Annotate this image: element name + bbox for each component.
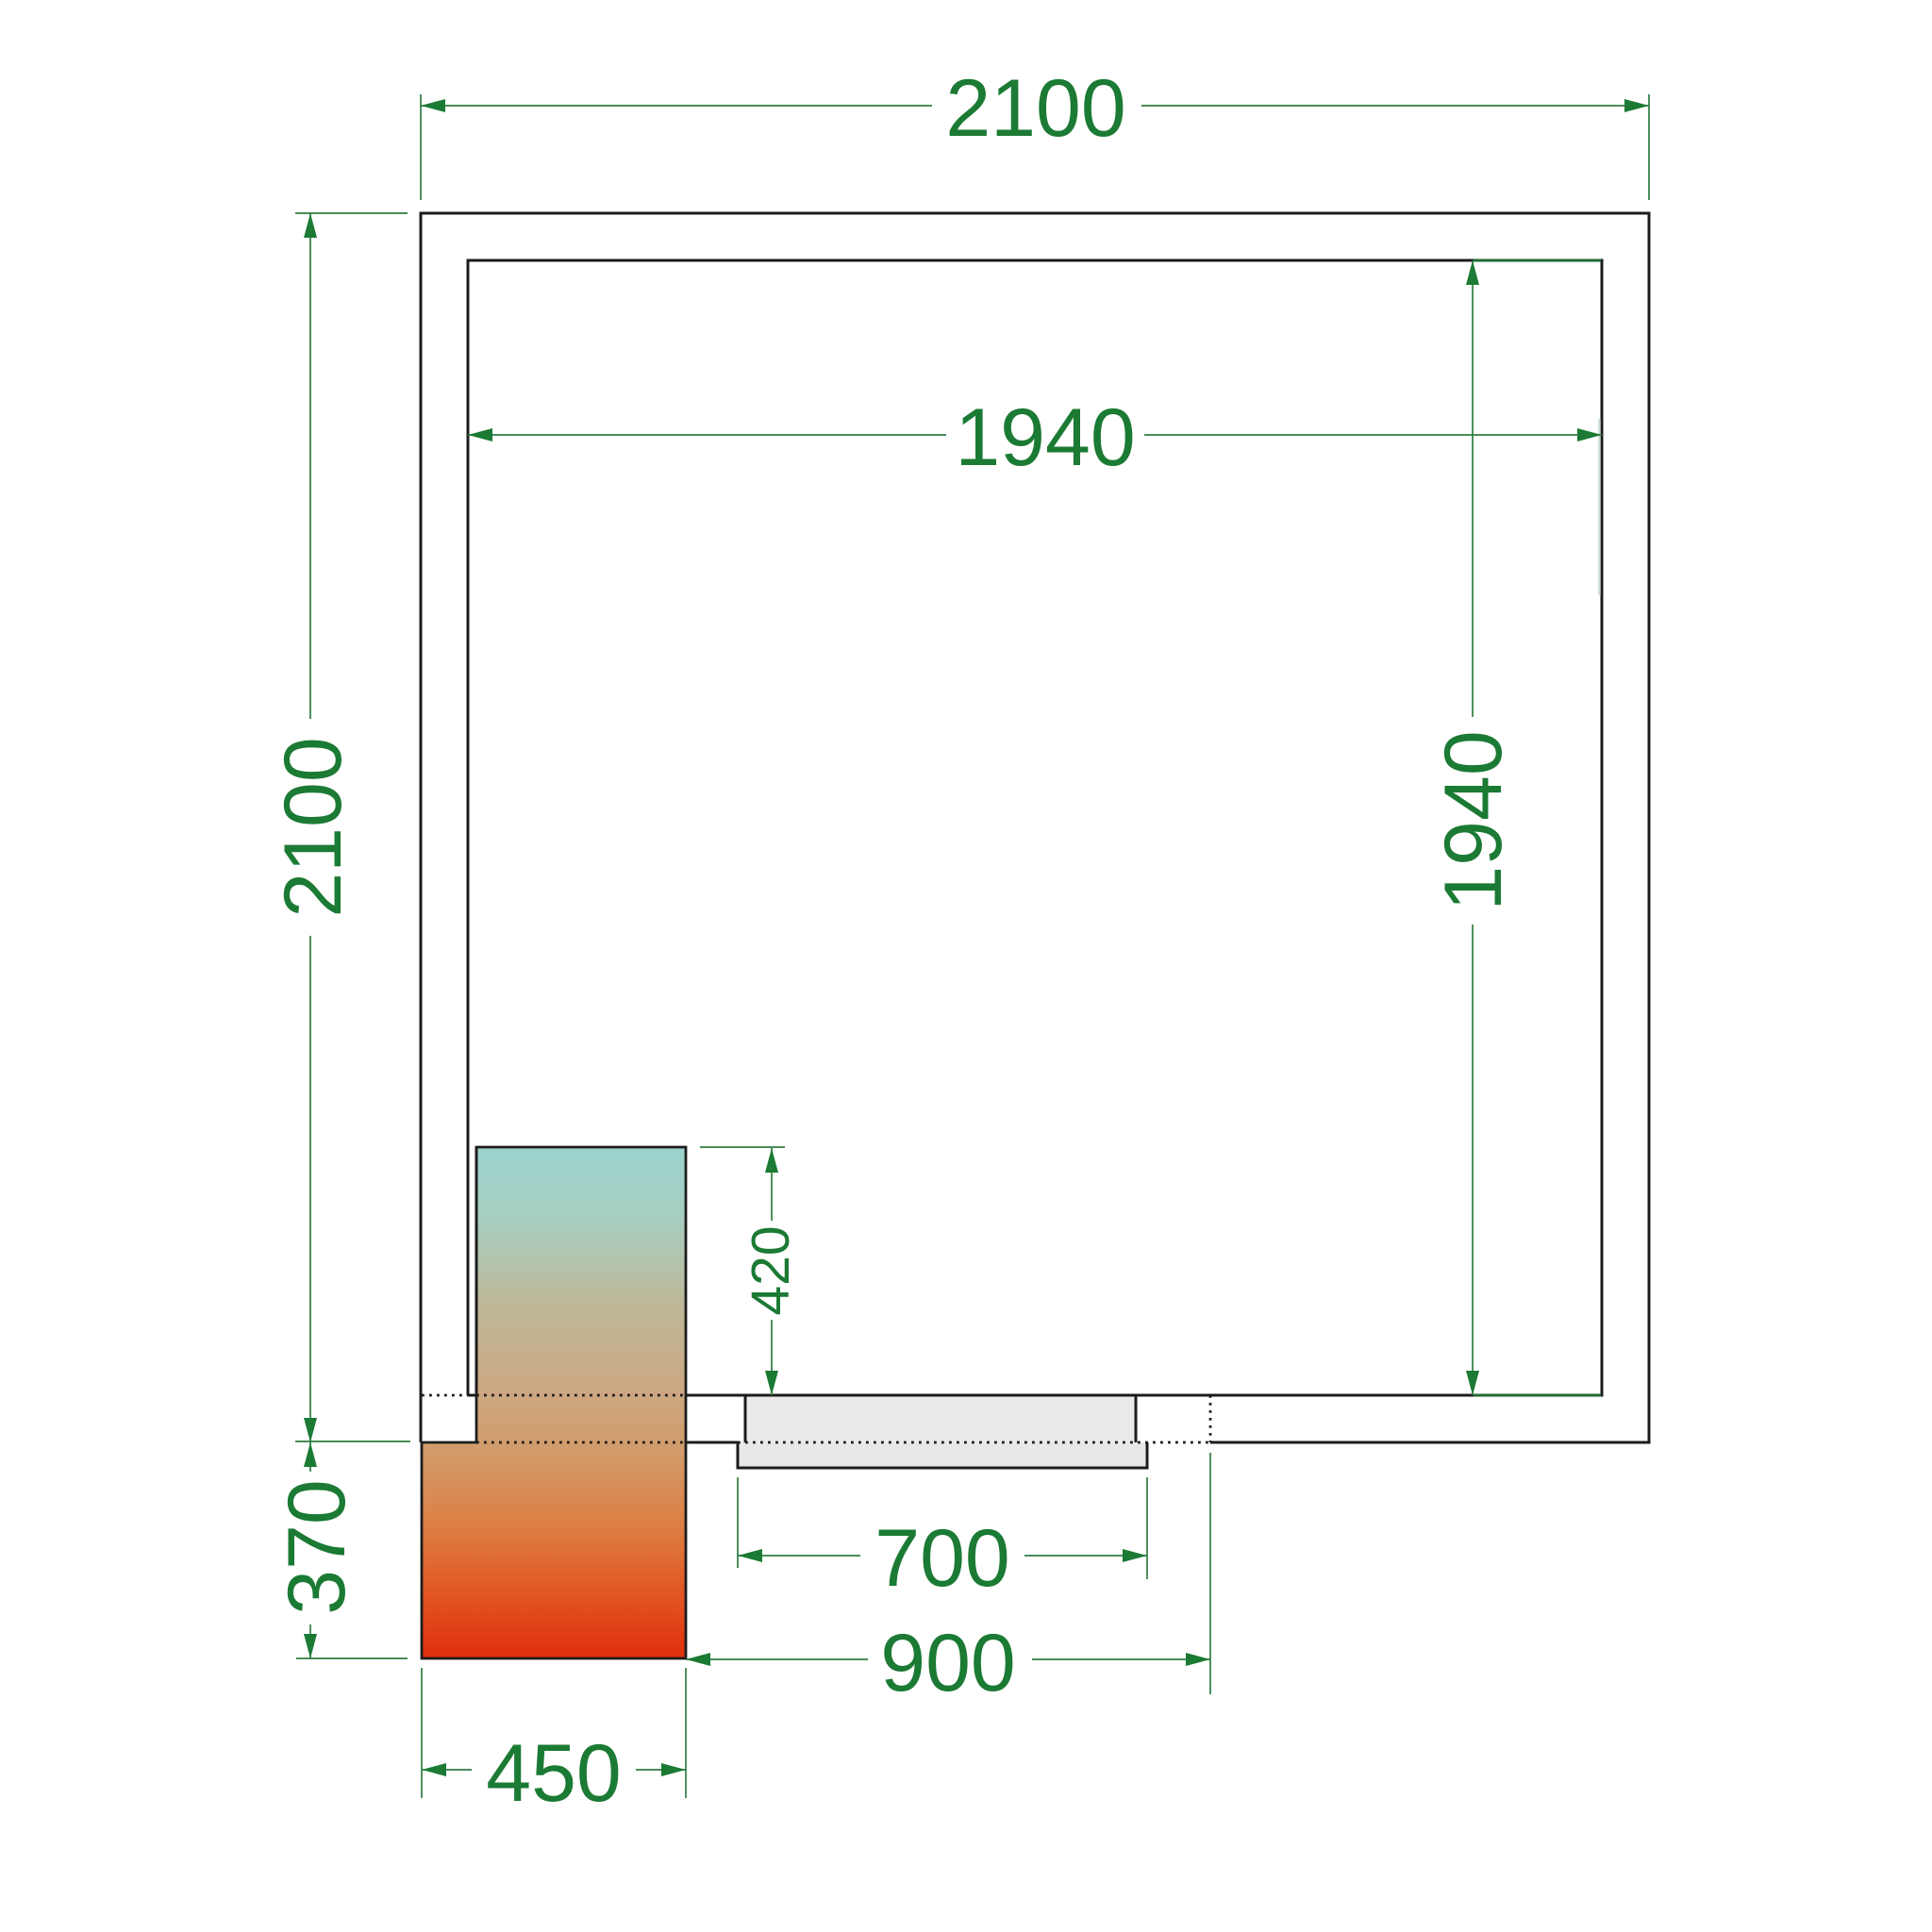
svg-text:700: 700 [874, 1513, 1010, 1604]
svg-text:2100: 2100 [945, 63, 1125, 154]
svg-text:370: 370 [272, 1479, 362, 1615]
svg-text:1940: 1940 [955, 392, 1135, 483]
svg-text:900: 900 [880, 1618, 1016, 1708]
svg-text:420: 420 [741, 1225, 801, 1315]
svg-text:450: 450 [486, 1728, 622, 1819]
svg-text:2100: 2100 [268, 737, 358, 917]
svg-text:1940: 1940 [1428, 730, 1519, 910]
